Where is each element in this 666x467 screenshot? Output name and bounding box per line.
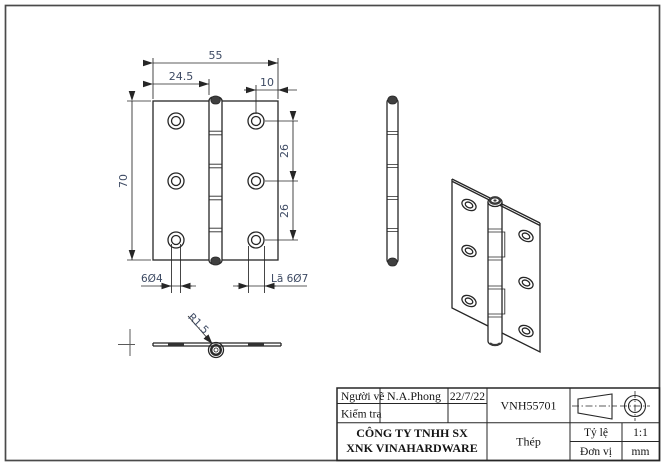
dim-pin-offset-value: 24.5 — [169, 70, 194, 83]
dim-hole-edge-value: 10 — [260, 76, 274, 89]
dim-holes-small-value: 6Ø4 — [141, 273, 163, 285]
checker-label: Kiểm tra — [341, 408, 382, 421]
dim-hole-edge: 10 — [244, 76, 297, 90]
pin-cap-bottom-side — [388, 258, 397, 266]
iso-barrel — [488, 202, 502, 341]
dim-pin-offset: 24.5 — [153, 70, 209, 84]
material-value: Thép — [516, 435, 541, 449]
unit-label: Đơn vị — [580, 446, 612, 458]
dim-total-width-value: 55 — [209, 49, 223, 62]
front-view: 55 24.5 10 70 26 26 — [117, 49, 308, 293]
pin-cap-top — [211, 96, 221, 104]
dim-hole-pitch-lower-value: 26 — [278, 204, 291, 218]
dim-knuckle-radius-value: R1.5 — [185, 311, 210, 336]
pin-cap-top-side — [388, 96, 397, 104]
dim-total-height: 70 — [117, 101, 132, 260]
side-view — [387, 96, 398, 266]
company-line1: CÔNG TY TNHH SX — [356, 426, 468, 440]
drawer-label: Người vẽ — [341, 391, 384, 403]
dim-hole-pitch-upper-value: 26 — [278, 144, 291, 158]
projection-symbol-icon — [572, 391, 650, 421]
drawer-name: N.A.Phong — [387, 389, 441, 403]
bottom-view: R1.5 — [118, 311, 281, 357]
drawing-code: VNH55701 — [501, 399, 557, 413]
dim-hole-pitch-lower: 26 — [278, 181, 293, 240]
dim-total-height-value: 70 — [117, 174, 130, 188]
hinge-barrel-front — [209, 97, 222, 264]
scale-value: 1:1 — [633, 427, 648, 439]
date-value: 22/7/22 — [450, 391, 485, 403]
dim-hole-pitch-upper: 26 — [278, 121, 293, 181]
unit-value: mm — [632, 446, 650, 458]
dim-holes-small: 6Ø4 — [141, 273, 196, 286]
pin-end — [214, 348, 218, 352]
company-line2: XNK VINAHARDWARE — [346, 441, 477, 455]
drawing-canvas: 55 24.5 10 70 26 26 — [0, 0, 666, 467]
sheet-border — [6, 6, 660, 461]
pin-cap-bottom — [211, 257, 221, 265]
iso-pin-tail — [490, 343, 500, 345]
dim-holes-countersunk-value: Lã 6Ø7 — [271, 273, 308, 285]
drawing-sheet: 55 24.5 10 70 26 26 — [0, 0, 666, 467]
dim-holes-countersunk: Lã 6Ø7 — [233, 273, 308, 286]
hinge-side-profile — [387, 99, 398, 263]
scale-label: Tỷ lệ — [584, 427, 608, 439]
dim-knuckle-radius: R1.5 — [185, 311, 212, 344]
title-block: Người vẽ N.A.Phong 22/7/22 Kiểm tra VNH5… — [337, 388, 660, 461]
isometric-view — [452, 179, 540, 352]
dim-total-width: 55 — [153, 49, 278, 63]
center-mark — [118, 329, 135, 356]
